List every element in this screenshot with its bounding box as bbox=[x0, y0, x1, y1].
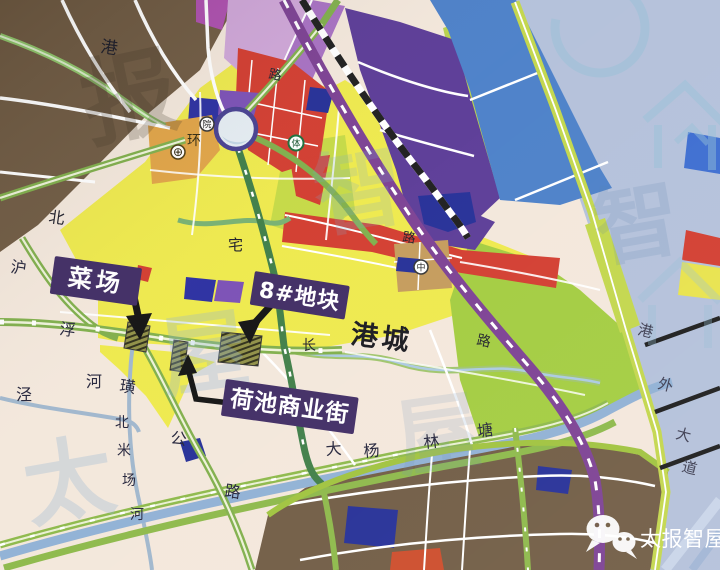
map-photo: ⊕ 院 体 中 报 智 屋 太 智 屋 bbox=[0, 0, 720, 570]
photo-sheen bbox=[0, 0, 720, 570]
